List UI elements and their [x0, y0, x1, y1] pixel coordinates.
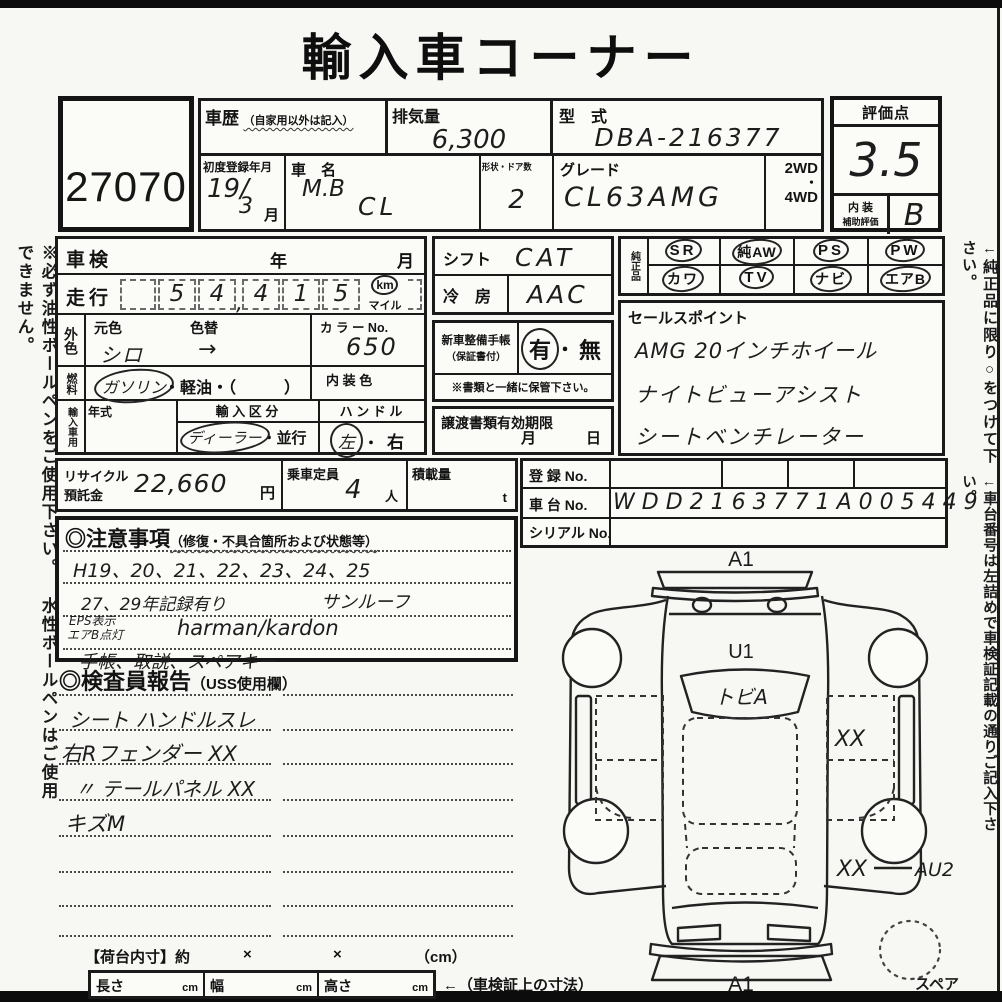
repaint-label: 色替 [190, 318, 218, 338]
car-name-1: M.B [302, 176, 345, 202]
base-color-value: シロ [100, 339, 144, 368]
capacity-unit: 人 [385, 486, 398, 505]
shaken-month-label: 月 [397, 247, 414, 272]
car-name-2: CL [358, 192, 397, 221]
exterior-color-label-cell: 外色 [58, 315, 86, 367]
recycle-fee-cell: リサイクル 預託金 22,660 円 [58, 461, 283, 509]
bed-cm: （cm） [415, 946, 467, 967]
sales-point-line: シートベンチレーター [635, 421, 865, 451]
interior-score-row: 内 装 補助評価 B [834, 196, 938, 234]
oem-label-cell: 純正品 [621, 239, 649, 293]
history-label: 車歴 [205, 109, 239, 128]
chassis-no-label: 車 台 No. [529, 495, 587, 515]
shift-label: シフト [443, 246, 491, 270]
mileage-digit-box: 5 [158, 279, 196, 310]
inspector-header: ◎検査員報告（USS使用欄） [59, 664, 297, 696]
diagram-spare-label: スペア [915, 976, 959, 993]
book-no: 無 [579, 333, 601, 365]
book-block: 新車整備手帳 （保証書付） 有 ・ 無 ※書類と一緒に保管下さい。 [432, 320, 614, 402]
scan-border-top [0, 0, 1002, 8]
diagram-front-label: A1 [728, 548, 754, 571]
ac-value: AAC [527, 280, 588, 309]
transfer-day: 日 [586, 427, 601, 448]
grade-cell: グレード CL63AMG [554, 156, 766, 229]
auction-sheet: 輸入車コーナー 27070 車歴 （自家用以外は記入） 排気量 6,300 型 … [0, 0, 1002, 1002]
score-value: 3.5 [849, 133, 922, 187]
sales-point-line: AMG 20インチホイール [635, 335, 877, 365]
handle-dot: ・ [363, 435, 378, 452]
oem-item-tv: TV [744, 269, 769, 286]
mileage-row: 走行 5 4 , 4 1 5 km マイル [58, 275, 424, 315]
ac-row: 冷 房 AAC [435, 276, 611, 312]
diagram-front-door-note: XX [834, 727, 866, 752]
notes-header: ◎注意事項（修復・不具合箇所および状態等） [65, 523, 378, 553]
book-main: 新車整備手帳 （保証書付） 有 ・ 無 [435, 323, 611, 375]
recycle-yen: 円 [260, 482, 275, 503]
diagram-rear-code-note: AU2 [913, 859, 954, 881]
book-note: ※書類と一緒に保管下さい。 [435, 375, 611, 399]
interior-score-label: 内 装 補助評価 [834, 196, 890, 234]
registration-block: 登 録 No. 車 台 No. WDD2163771A005449 シリアル N… [520, 458, 948, 548]
mileage-digit-box: 4 [198, 279, 236, 310]
oem-item-leather: カワ [667, 269, 699, 289]
serial-no-label: シリアル No. [529, 523, 611, 543]
shaken-row: 車検 年 月 [58, 239, 424, 275]
transfer-label: 譲渡書類有効期限 [441, 413, 553, 433]
first-reg-cell: 初度登録年月 19/ 3 月 [201, 156, 286, 229]
doors-value: 2 [481, 185, 552, 215]
bed-arrow-note: ←（車検証上の寸法） [443, 974, 593, 995]
notes-line-3c: harman/kardon [177, 616, 339, 640]
mileage-digit-box: 1 [282, 279, 320, 310]
book-label-cell: 新車整備手帳 （保証書付） [435, 323, 519, 375]
shaken-label: 車検 [66, 245, 112, 272]
recycle-row: リサイクル 預託金 22,660 円 乗車定員 4 人 積載量 t [55, 458, 518, 512]
interior-score-value: B [890, 196, 938, 234]
bed-x1: × [243, 946, 252, 963]
diagram-hood-label: U1 [728, 641, 754, 663]
bed-dimension-table: 長さ cm 幅 cm 高さ cm [88, 970, 436, 999]
fuel-row: 燃料 ガソリン ・軽油・（ ） 内 装 色 [58, 367, 424, 401]
oem-grid: 純正品 SR 純AW PS PW カワ TV ナビ エアB [618, 236, 945, 296]
mileage-digit-box: 5 [322, 279, 360, 310]
doors-cell: 形状・ドア数 2 [481, 156, 554, 229]
mileage-box-empty-tail [408, 279, 422, 310]
shift-value: CAT [515, 243, 575, 272]
load-cell: 積載量 t [408, 461, 515, 509]
sales-point-line: ナイトビューアシスト [635, 379, 863, 409]
condition-table: 車検 年 月 走行 5 4 , 4 1 5 km マイル 外色 元色 シロ [55, 236, 427, 455]
import-row: 輸入車用 年式 輸 入 区 分 ディーラー・並行 ハ ン ド ル 左 ・ [58, 401, 424, 452]
ac-label: 冷 房 [443, 283, 491, 307]
page-title: 輸入車コーナー [0, 18, 1002, 90]
fuel-gasoline: ガソリン [102, 374, 166, 398]
bed-length-cell: 長さ cm [91, 973, 205, 996]
oem-item-airbag: エアB [885, 269, 926, 289]
import-class-cell: 輸 入 区 分 ディーラー・並行 [176, 401, 320, 452]
displacement-value: 6,300 [392, 125, 546, 155]
grade-value: CL63AMG [554, 182, 764, 213]
shift-block: シフト CAT 冷 房 AAC [432, 236, 614, 315]
vehicle-info-table: 車歴 （自家用以外は記入） 排気量 6,300 型 式 DBA-216377 初… [198, 98, 824, 232]
sales-points-label: セールスポイント [628, 307, 748, 328]
diagram-windshield-note: トビA [714, 685, 768, 709]
interior-color-label: 内 装 色 [326, 370, 372, 389]
color-no-value: 650 [346, 333, 398, 361]
left-margin-note: ※必ず油性ボールペンをご使用下さい。 水性ボールペンはご使用できません。 [12, 244, 60, 804]
inspector-line-3: 〃 テールパネル XX [75, 773, 255, 802]
first-reg-suffix: 月 [264, 204, 279, 225]
inspector-line-2: 右Rフェンダー XX [61, 738, 237, 768]
sales-points-box: セールスポイント AMG 20インチホイール ナイトビューアシスト シートベンチ… [618, 300, 945, 456]
capacity-cell: 乗車定員 4 人 [283, 461, 408, 509]
first-reg-label: 初度登録年月 [201, 156, 284, 175]
model-code-cell: 型 式 DBA-216377 [553, 101, 824, 156]
score-box: 評価点 3.5 内 装 補助評価 B [830, 96, 942, 232]
right-margin-note-oem: ←純正品に限り○をつけて下さい。 [958, 240, 1000, 470]
drive-dot: ・ [772, 177, 818, 189]
handle-cell: ハ ン ド ル 左 ・ 右 [318, 401, 424, 452]
notes-box: ◎注意事項（修復・不具合箇所および状態等） H19、20、21、22、23、24… [55, 516, 518, 662]
mileage-label: 走行 [66, 283, 112, 310]
base-color-label: 元色 [94, 318, 122, 338]
bed-height-cell: 高さ cm [319, 973, 433, 996]
exterior-color-row: 外色 元色 シロ 色替 → カ ラ ー No. 650 [58, 315, 424, 367]
notes-line-2b: サンルーフ [321, 588, 410, 614]
handle-label: ハ ン ド ル [340, 404, 403, 419]
inspector-report: ◎検査員報告（USS使用欄） シート ハンドルスレ 右Rフェンダー XX 〃 テ… [55, 664, 518, 936]
history-note: （自家用以外は記入） [243, 115, 353, 127]
mileage-unit-km: km [376, 278, 393, 292]
mileage-unit-mile: マイル [364, 297, 406, 313]
import-class-label: 輸 入 区 分 [216, 404, 279, 419]
inspector-line-1: シート ハンドルスレ [69, 704, 255, 733]
displacement-label: 排気量 [392, 109, 440, 126]
oem-item-ps: PS [818, 242, 844, 259]
handle-left: 左 [338, 428, 355, 453]
shift-row: シフト CAT [435, 239, 611, 276]
load-unit: t [503, 490, 507, 505]
notes-line-3b: エアB点灯 [67, 626, 123, 643]
score-header: 評価点 [834, 100, 938, 127]
serial-no-row: シリアル No. [523, 519, 945, 545]
car-damage-diagram: A1 U1 トビA XX XX AU2 A1 スペア [540, 548, 995, 993]
mileage-unit-cell: km マイル [364, 276, 406, 313]
book-choice: 有 ・ 無 [519, 323, 611, 375]
capacity-label: 乗車定員 [287, 464, 339, 483]
grade-label: グレード [554, 156, 764, 180]
bed-x2: × [333, 946, 342, 963]
chassis-no-value: WDD2163771A005449 [613, 490, 985, 515]
model-code-value: DBA-216377 [559, 123, 818, 152]
year-model-cell: 年式 [84, 401, 178, 452]
notes-line-1: H19、20、21、22、23、24、25 [73, 556, 371, 583]
import-label-cell: 輸入車用 [58, 401, 86, 452]
load-label: 積載量 [412, 464, 451, 483]
bed-dimension-line: 【荷台内寸】約 × × （cm） [85, 946, 545, 968]
bed-width-cell: 幅 cm [205, 973, 319, 996]
drive-4wd: 4WD [772, 189, 818, 206]
bed-label: 【荷台内寸】約 [85, 946, 190, 967]
mileage-digit-box: 4 [242, 279, 280, 310]
oem-item-navi: ナビ [815, 269, 847, 289]
oem-item-aw: 純AW [737, 242, 777, 262]
diagram-rear-quarter-note: XX [836, 857, 868, 882]
mileage-box-empty-lead [120, 279, 156, 310]
reg-no-row: 登 録 No. [523, 461, 945, 489]
lot-number-box: 27070 [58, 96, 194, 232]
recycle-amount: 22,660 [134, 469, 227, 498]
interior-color-cell: 内 装 色 [310, 367, 424, 401]
chassis-no-row: 車 台 No. WDD2163771A005449 [523, 489, 945, 519]
transfer-block: 譲渡書類有効期限 月 日 [432, 406, 614, 455]
oem-item-sr: SR [670, 242, 697, 259]
color-no-cell: カ ラ ー No. 650 [310, 315, 424, 367]
car-name-cell: 車 名 M.B CL [286, 156, 481, 229]
first-reg-month-value: 3 [239, 194, 253, 219]
import-parallel: 並行 [276, 430, 306, 447]
repaint-value: → [198, 337, 216, 362]
displacement-cell: 排気量 6,300 [388, 101, 553, 156]
transfer-month: 月 [521, 427, 536, 448]
year-model-label: 年式 [88, 403, 112, 420]
oem-item-pw: PW [890, 242, 920, 259]
doors-label: 形状・ドア数 [481, 156, 546, 173]
lot-number: 27070 [65, 163, 187, 227]
shaken-year-label: 年 [270, 247, 287, 272]
drive-cell: 2WD ・ 4WD [766, 156, 824, 229]
import-dealer: ディーラー [188, 427, 262, 448]
diagram-rear-label: A1 [728, 973, 754, 993]
history-cell: 車歴 （自家用以外は記入） [201, 101, 388, 156]
score-label: 評価点 [862, 102, 910, 123]
inspector-line-4: キズM [65, 808, 125, 838]
fuel-label-cell: 燃料 [58, 367, 86, 401]
fuel-rest: ・軽油・（ ） [164, 374, 300, 398]
capacity-value: 4 [345, 475, 362, 505]
score-value-area: 3.5 [834, 127, 938, 196]
book-yes: 有 [529, 333, 551, 365]
handle-right: 右 [387, 433, 404, 452]
reg-no-label: 登 録 No. [529, 466, 587, 486]
